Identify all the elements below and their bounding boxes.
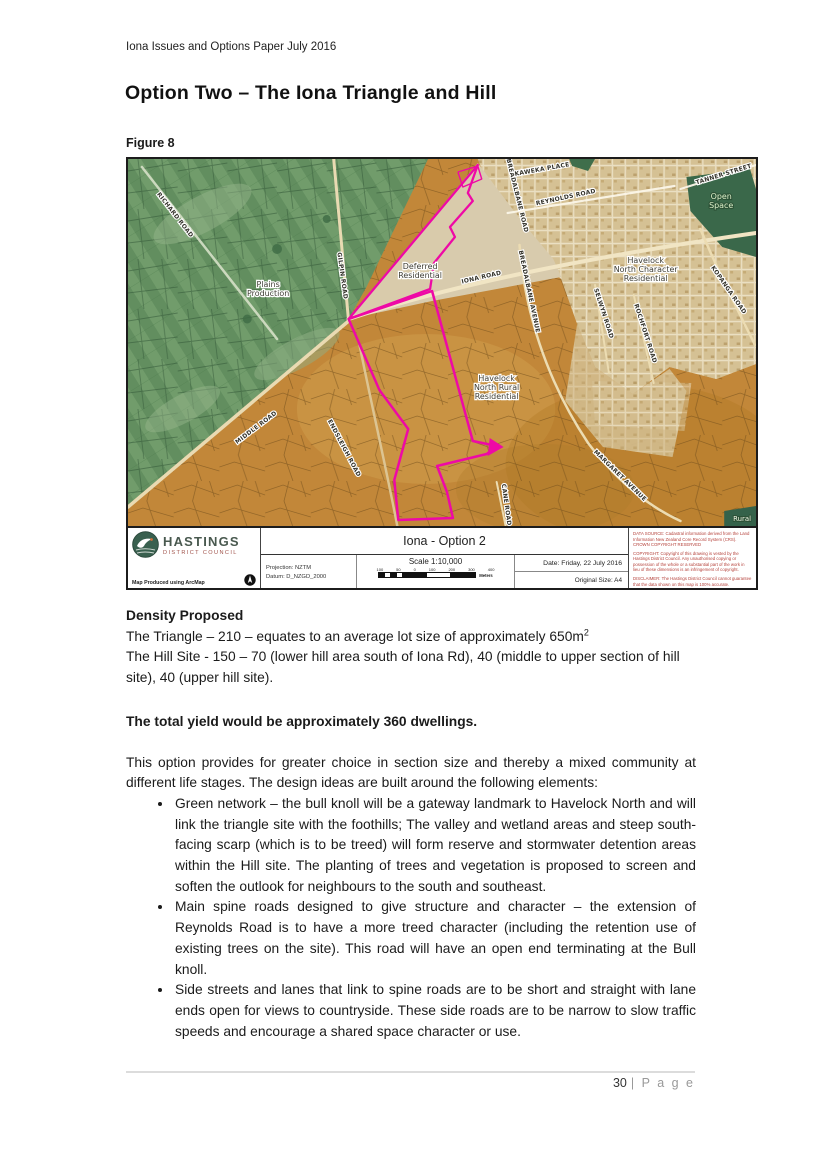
superscript-2: 2 [584, 627, 589, 637]
body-text: Density Proposed The Triangle – 210 – eq… [126, 606, 696, 1042]
footer-divider [126, 1071, 695, 1073]
legend-center-panel: Iona - Option 2 Projection: NZTM Datum: … [261, 528, 629, 588]
map-title: Iona - Option 2 [261, 528, 628, 555]
aerial-map: RICHARD ROADGILPIN ROADMIDDLE ROADENDSLE… [128, 159, 756, 526]
produced-note: Map Produced using ArcMap [132, 580, 205, 586]
bullet-item: Side streets and lanes that link to spin… [173, 980, 696, 1042]
scale-bar [378, 572, 476, 578]
map-date: Date: Friday, 22 July 2016 [515, 555, 628, 572]
legend-logo-panel: HASTINGS DISTRICT COUNCIL Map Produced u… [128, 528, 261, 588]
council-name: HASTINGS [163, 534, 240, 549]
page-footer: 30| P a g e [126, 1076, 695, 1090]
hastings-logo-icon [132, 531, 159, 558]
projection-label: Projection: NZTM [266, 564, 352, 573]
map-legend: HASTINGS DISTRICT COUNCIL Map Produced u… [128, 526, 756, 588]
document-page: Iona Issues and Options Paper July 2016 … [0, 0, 821, 1160]
scale-label: Scale 1:10,000 [409, 557, 462, 566]
density-triangle-line: The Triangle – 210 – equates to an avera… [126, 627, 696, 648]
page-title: Option Two – The Iona Triangle and Hill [125, 82, 496, 105]
total-yield-line: The total yield would be approximately 3… [126, 712, 696, 733]
north-compass-icon [244, 574, 256, 586]
zone-label: OpenSpace [709, 192, 733, 210]
disclaimer-note: DISCLAIMER: The Hastings District Counci… [633, 576, 752, 587]
scale-unit: Meters [479, 573, 493, 578]
figure-label: Figure 8 [126, 136, 175, 150]
disclaimer-note: COPYRIGHT: Copyright of this drawing is … [633, 551, 752, 573]
date-panel: Date: Friday, 22 July 2016 Original Size… [515, 555, 628, 588]
figure-8-map: RICHARD ROADGILPIN ROADMIDDLE ROADENDSLE… [126, 157, 758, 590]
density-hill-line: The Hill Site - 150 – 70 (lower hill are… [126, 647, 696, 688]
projection-info: Projection: NZTM Datum: D_NZGD_2000 [261, 555, 357, 588]
datum-label: Datum: D_NZGD_2000 [266, 573, 352, 582]
bullet-item: Main spine roads designed to give struct… [173, 897, 696, 980]
page-word: | P a g e [631, 1076, 695, 1090]
legend-disclaimer-notes: DATA SOURCE: Cadastral information deriv… [629, 528, 756, 588]
density-heading: Density Proposed [126, 606, 696, 627]
bullet-item: Green network – the bull knoll will be a… [173, 794, 696, 898]
zone-label: DeferredResidential [398, 262, 442, 280]
zone-label: Rural [733, 515, 751, 523]
scale-panel: Scale 1:10,000 100500100200300400 Meters [357, 555, 515, 588]
council-subtitle: DISTRICT COUNCIL [163, 550, 240, 556]
original-size: Original Size: A4 [515, 572, 628, 588]
document-header: Iona Issues and Options Paper July 2016 [126, 41, 336, 53]
disclaimer-note: DATA SOURCE: Cadastral information deriv… [633, 531, 752, 548]
bullet-list: Green network – the bull knoll will be a… [126, 794, 696, 1042]
page-number: 30 [613, 1076, 627, 1090]
zone-label: HavelockNorth RuralResidential [474, 374, 519, 401]
intro-paragraph: This option provides for greater choice … [126, 753, 696, 794]
